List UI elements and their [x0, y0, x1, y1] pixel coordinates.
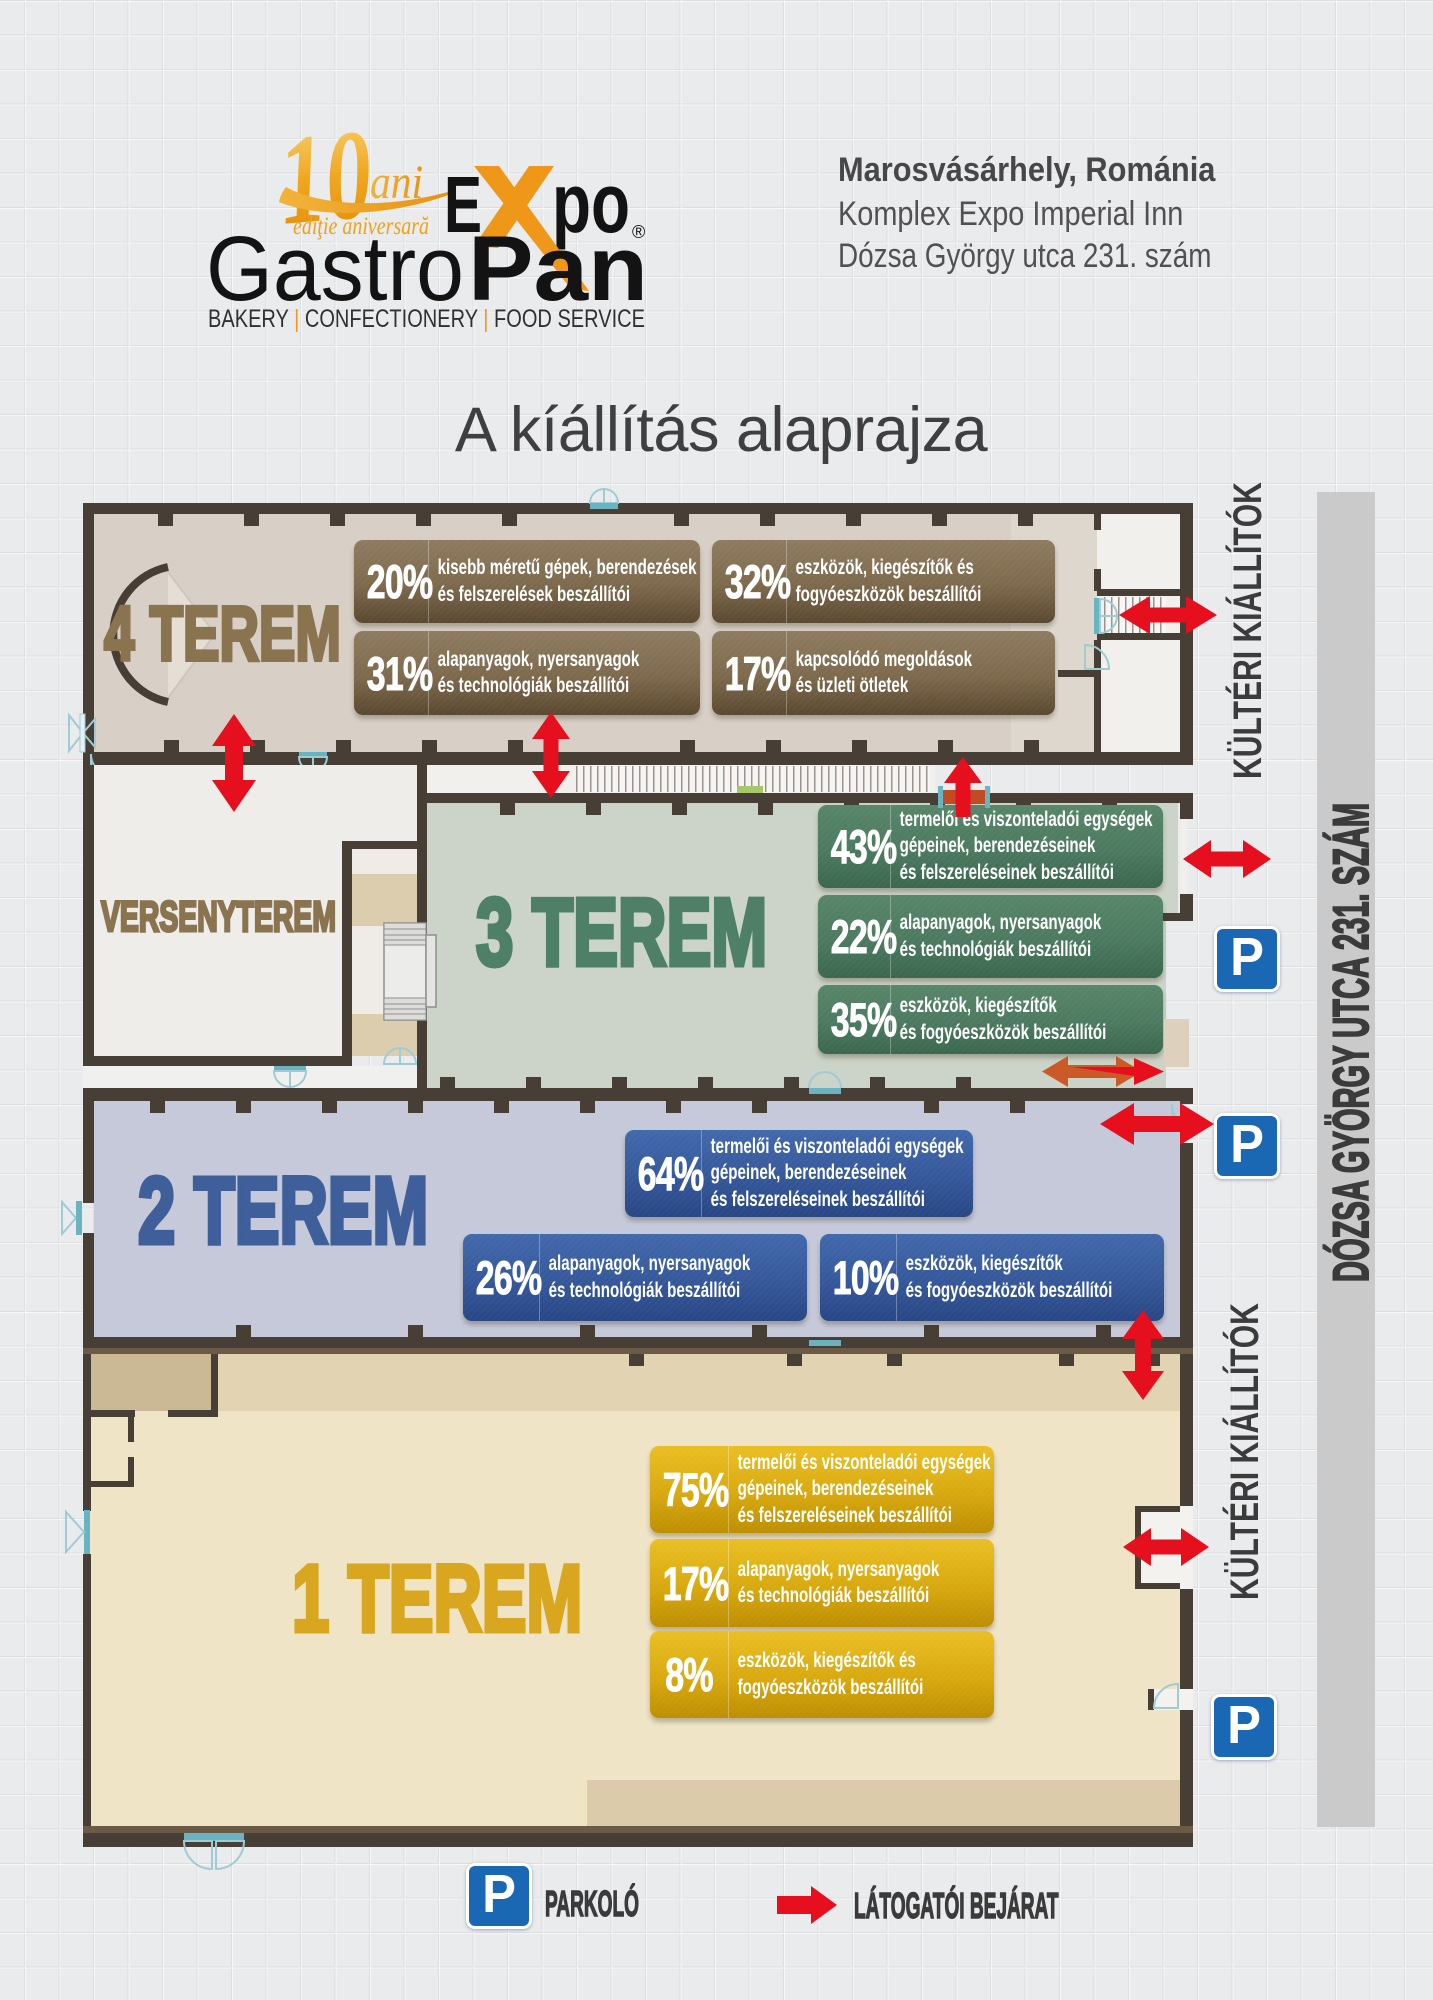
svg-text:ani: ani: [370, 156, 423, 209]
svg-text:®: ®: [632, 222, 645, 242]
svg-text:BAKERY | CONFECTIONERY | FOOD: BAKERY | CONFECTIONERY | FOOD SERVICE: [208, 305, 645, 333]
